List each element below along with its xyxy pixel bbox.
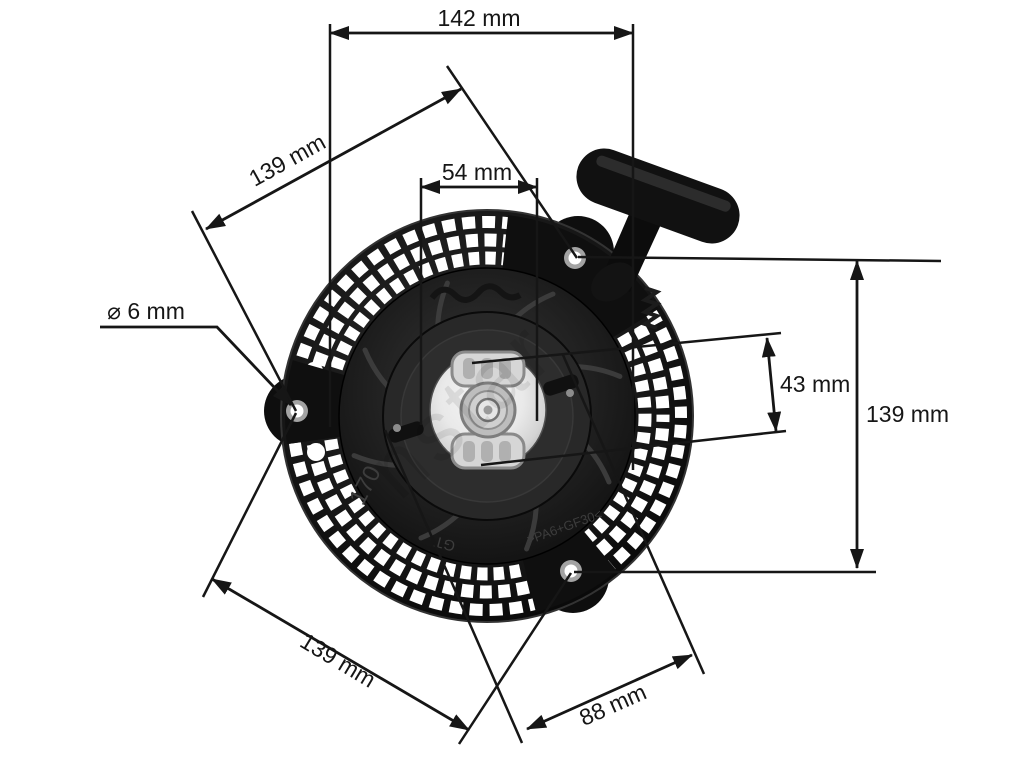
dim-label-hole-diameter: ⌀ 6 mm <box>107 298 185 324</box>
dim-label-hole-pitch-lower-left: 139 mm <box>296 628 381 693</box>
dim-label-hole-offset-bottom: 88 mm <box>575 679 650 731</box>
recoil-starter-illustration: 170 >PA6+GF30< GT nstar <box>264 141 747 622</box>
dimension-hole-diameter: ⌀ 6 mm <box>100 298 291 405</box>
diagram-canvas: 170 >PA6+GF30< GT nstar 142 mm 139 mm 54… <box>0 0 1024 768</box>
pawl-rivet <box>566 389 574 397</box>
dim-label-overall-width: 142 mm <box>437 5 520 31</box>
dim-label-hub-height: 43 mm <box>780 371 850 397</box>
dim-label-overall-height: 139 mm <box>866 401 949 427</box>
recoil-starter-dimension-diagram: 170 >PA6+GF30< GT nstar 142 mm 139 mm 54… <box>0 0 1024 768</box>
dim-label-hole-pitch-upper-left: 139 mm <box>244 128 329 191</box>
dim-label-hub-width: 54 mm <box>442 159 512 185</box>
